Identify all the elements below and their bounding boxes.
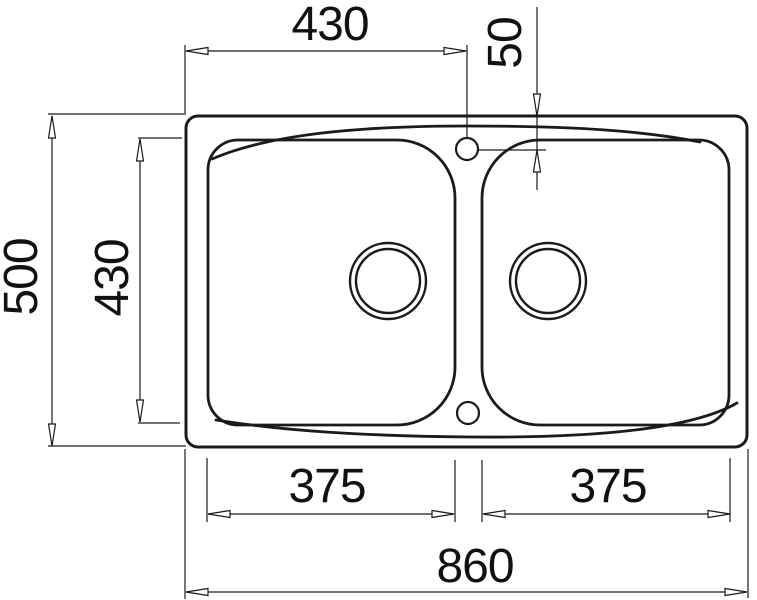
sink-outer-edge bbox=[186, 116, 747, 447]
dimension-arrowheads bbox=[49, 48, 748, 596]
arrow-overall-width-left bbox=[186, 589, 208, 596]
arrow-top-width-right bbox=[444, 48, 466, 55]
bowl-right bbox=[482, 140, 729, 425]
sink-outlines bbox=[186, 116, 747, 447]
dim-label-overall-depth: 500 bbox=[0, 238, 46, 315]
arrow-overall-width-right bbox=[725, 589, 747, 596]
arrow-right-bowl-left bbox=[483, 511, 505, 518]
arrow-tap-offset-top bbox=[534, 94, 541, 116]
dim-label-tap-hole-offset: 50 bbox=[482, 17, 530, 68]
dim-label-overall-width: 860 bbox=[436, 543, 513, 591]
drain-right-outer bbox=[510, 243, 586, 319]
dim-label-right-bowl-width: 375 bbox=[569, 463, 646, 511]
arrow-left-bowl-left bbox=[208, 511, 230, 518]
arrow-top-width-left bbox=[186, 48, 208, 55]
dim-label-top-width: 430 bbox=[291, 1, 368, 49]
arrow-left-bowl-right bbox=[432, 511, 454, 518]
drain-left-outer bbox=[350, 243, 426, 319]
drain-right-inner bbox=[516, 249, 580, 313]
arrow-bowl-depth-top bbox=[137, 139, 144, 161]
sink-technical-drawing: 430 50 500 430 375 375 860 bbox=[0, 0, 757, 600]
bowl-left bbox=[208, 140, 455, 425]
tap-hole-top bbox=[456, 138, 478, 160]
dim-label-bowl-depth: 430 bbox=[89, 239, 137, 316]
arrow-overall-depth-top bbox=[49, 116, 56, 138]
rim-sweep-top bbox=[212, 126, 700, 159]
arrow-right-bowl-right bbox=[708, 511, 730, 518]
arrow-tap-offset-bottom bbox=[534, 150, 541, 172]
dim-label-left-bowl-width: 375 bbox=[288, 463, 365, 511]
drain-left-inner bbox=[356, 249, 420, 313]
arrow-overall-depth-bottom bbox=[49, 424, 56, 446]
tap-hole-bottom bbox=[457, 402, 479, 424]
arrow-bowl-depth-bottom bbox=[137, 400, 144, 422]
